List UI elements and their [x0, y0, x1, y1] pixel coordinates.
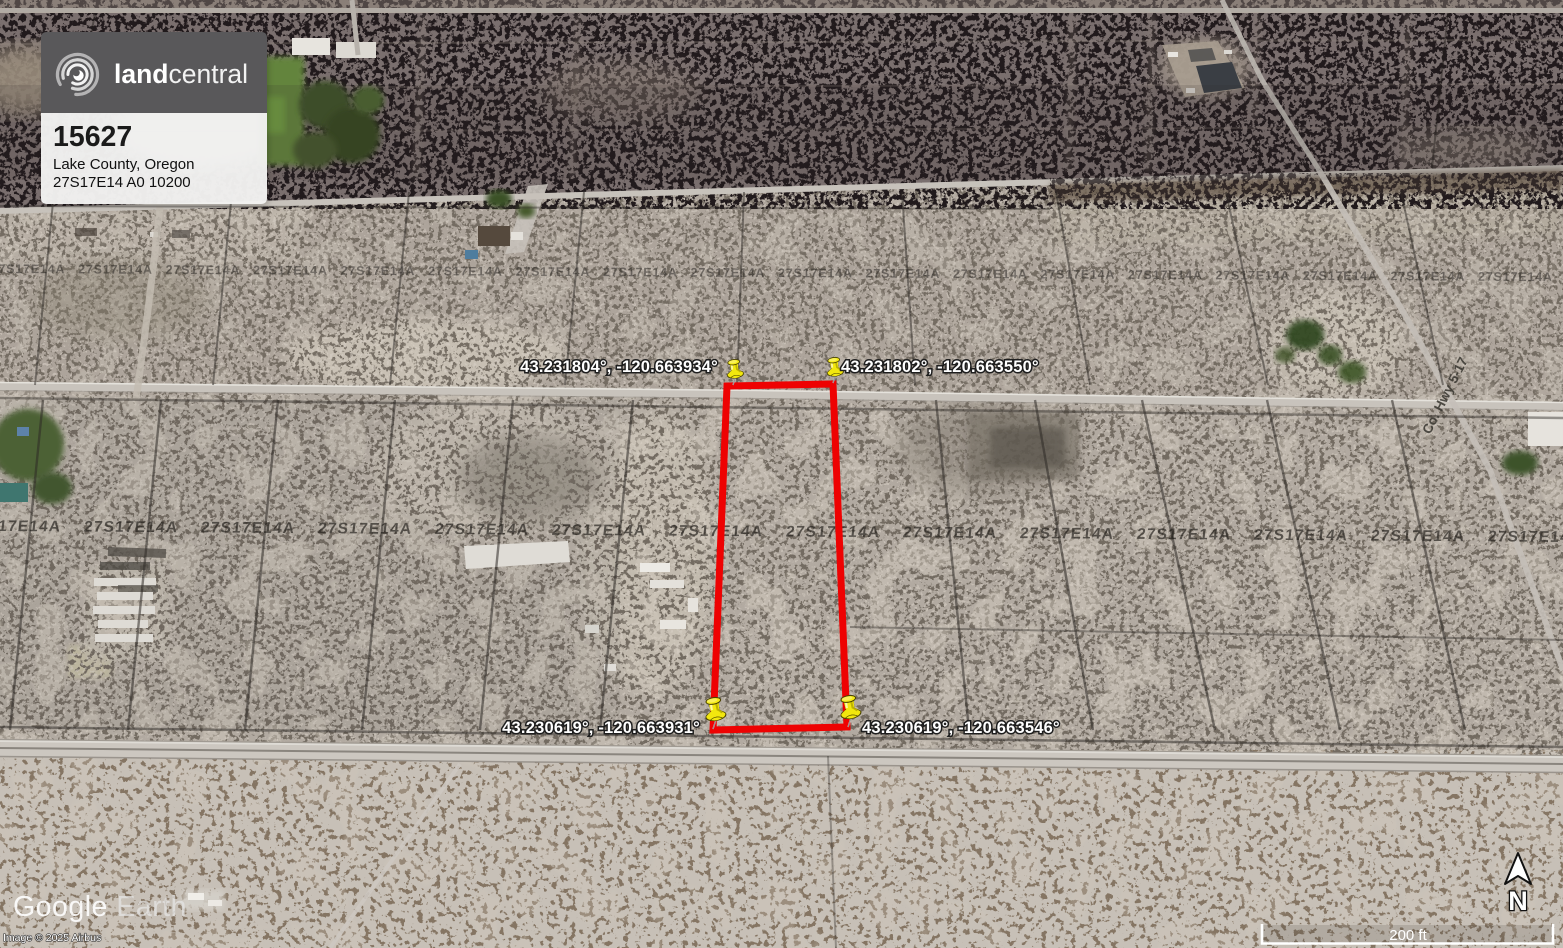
svg-text:43.231802°, -120.663550°: 43.231802°, -120.663550° — [841, 358, 1039, 376]
svg-text:27S17E14A: 27S17E14A — [603, 265, 678, 279]
svg-text:27S17E14A: 27S17E14A — [1487, 528, 1563, 546]
svg-text:27S17E14A: 27S17E14A — [953, 267, 1028, 281]
svg-text:27S17E14A: 27S17E14A — [778, 266, 853, 280]
svg-text:27S17E14A: 27S17E14A — [1478, 270, 1553, 284]
svg-text:27S17E14A: 27S17E14A — [253, 263, 328, 277]
svg-text:27S17E14A: 27S17E14A — [166, 263, 241, 277]
svg-text:27S17E14A: 27S17E14A — [434, 521, 530, 539]
svg-text:15627: 15627 — [53, 121, 132, 153]
svg-text:N: N — [1508, 886, 1528, 916]
svg-text:27S17E14A: 27S17E14A — [551, 522, 647, 540]
svg-text:Lake County, Oregon: Lake County, Oregon — [53, 156, 194, 173]
svg-text:27S17E14A: 27S17E14A — [1370, 528, 1466, 546]
svg-text:27S17E14A: 27S17E14A — [866, 267, 941, 281]
svg-text:Google Earth: Google Earth — [13, 891, 187, 923]
svg-text:27S17E14A: 27S17E14A — [1019, 525, 1115, 543]
svg-text:27S17E14A: 27S17E14A — [428, 264, 503, 278]
svg-text:27S17E14A: 27S17E14A — [1128, 268, 1203, 282]
svg-text:43.231804°, -120.663934°: 43.231804°, -120.663934° — [520, 358, 718, 376]
svg-text:200 ft: 200 ft — [1389, 927, 1427, 944]
svg-text:landcentral: landcentral — [114, 59, 248, 89]
svg-text:Image © 2025 Airbus: Image © 2025 Airbus — [3, 932, 101, 944]
svg-text:27S17E14A: 27S17E14A — [341, 264, 416, 278]
svg-text:27S17E14A: 27S17E14A — [1391, 269, 1466, 283]
svg-text:27S17E14A: 27S17E14A — [902, 524, 998, 542]
svg-text:27S17E14A: 27S17E14A — [200, 519, 296, 537]
svg-text:27S17E14A: 27S17E14A — [0, 518, 62, 536]
svg-text:27S17E14A: 27S17E14A — [1253, 527, 1349, 545]
svg-text:27S17E14A: 27S17E14A — [317, 520, 413, 538]
svg-text:43.230619°, -120.663546°: 43.230619°, -120.663546° — [862, 719, 1060, 737]
svg-text:27S17E14A: 27S17E14A — [83, 519, 179, 537]
svg-text:27S17E14A: 27S17E14A — [516, 265, 591, 279]
svg-text:27S17E14A: 27S17E14A — [1216, 268, 1291, 282]
svg-text:27S17E14A: 27S17E14A — [1041, 267, 1116, 281]
svg-text:27S17E14A: 27S17E14A — [668, 523, 764, 541]
svg-text:27S17E14A: 27S17E14A — [785, 524, 881, 542]
svg-text:27S17E14 A0 10200: 27S17E14 A0 10200 — [53, 174, 191, 191]
svg-text:43.230619°, -120.663931°: 43.230619°, -120.663931° — [502, 719, 700, 737]
svg-text:27S17E14A: 27S17E14A — [0, 262, 65, 276]
svg-text:27S17E14A: 27S17E14A — [1136, 526, 1232, 544]
svg-text:27S17E14A: 27S17E14A — [1303, 269, 1378, 283]
svg-text:27S17E14A: 27S17E14A — [691, 266, 766, 280]
svg-text:27S17E14A: 27S17E14A — [78, 262, 153, 276]
